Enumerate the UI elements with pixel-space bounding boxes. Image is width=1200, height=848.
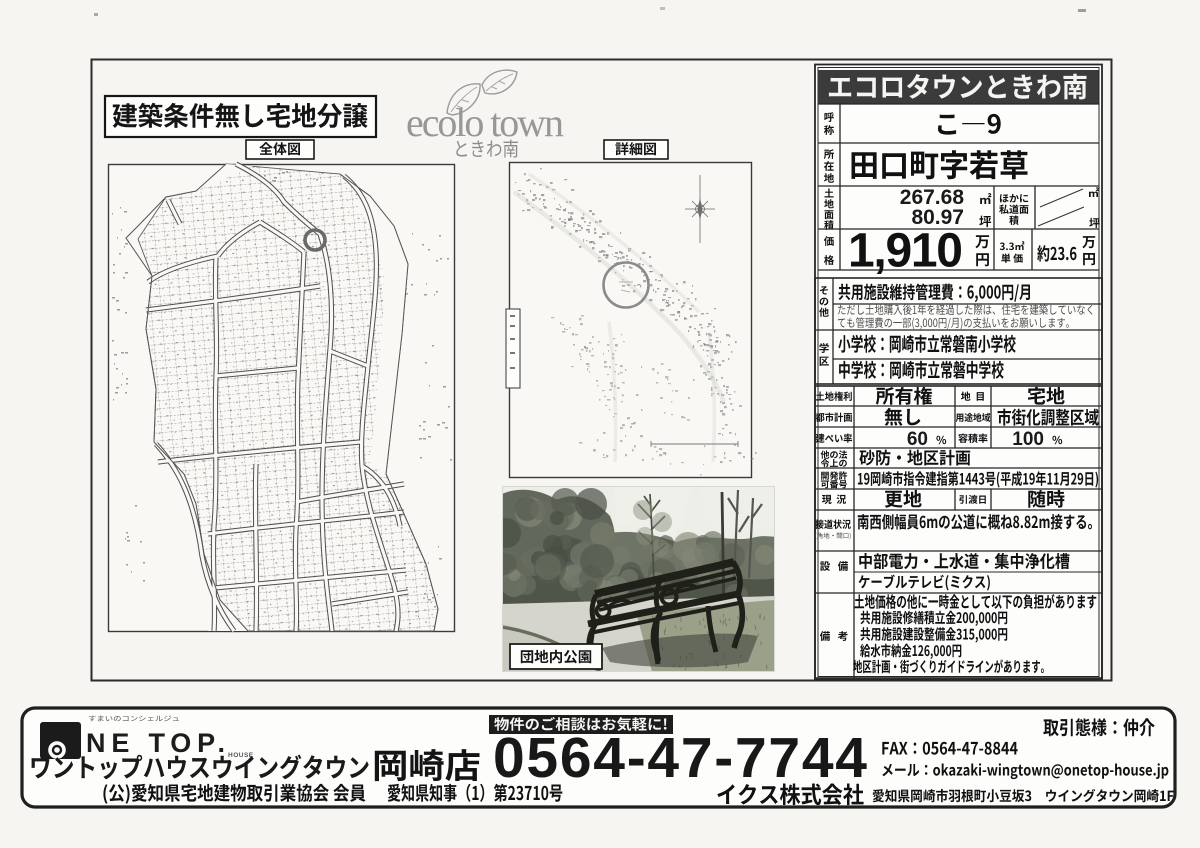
svg-text:60: 60 <box>907 429 928 450</box>
svg-text:1,910: 1,910 <box>848 225 963 278</box>
svg-text:ecolo town: ecolo town <box>406 100 564 145</box>
svg-text:100: 100 <box>1012 429 1044 450</box>
svg-text:0564-47-7744: 0564-47-7744 <box>493 726 867 790</box>
